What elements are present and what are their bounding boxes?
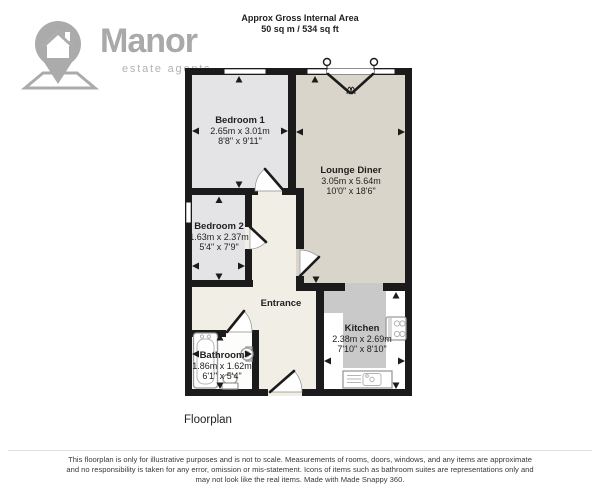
disclaimer-line-3: may not look like the real items. Made w… (20, 475, 580, 485)
room-name: Bathroom (192, 351, 252, 361)
room-name: Lounge Diner (320, 166, 381, 176)
room-metric-dims: 1.86m x 1.62m (192, 361, 252, 371)
room-name: Entrance (261, 299, 302, 309)
disclaimer-line-1: This floorplan is only for illustrative … (20, 455, 580, 465)
room-name: Kitchen (332, 324, 392, 334)
room-metric-dims: 2.65m x 3.01m (210, 126, 270, 136)
room-name: Bedroom 2 (189, 222, 249, 232)
room-label-bedroom-1: Bedroom 1 2.65m x 3.01m 8'8" x 9'11" (210, 116, 270, 146)
disclaimer-line-2: and no responsibility is taken for any e… (20, 465, 580, 475)
room-metric-dims: 1.63m x 2.37m (189, 232, 249, 242)
room-label-entrance: Entrance (261, 299, 302, 309)
floorplan-drawing (0, 0, 600, 495)
room-label-bedroom-2: Bedroom 2 1.63m x 2.37m 5'4" x 7'9" (189, 222, 249, 252)
lounge-window-left (307, 69, 327, 74)
floorplan-caption: Floorplan (184, 414, 232, 426)
kitchen-sink-icon (343, 371, 392, 388)
lounge-window-right (374, 69, 395, 74)
room-imperial-dims: 8'8" x 9'11" (210, 136, 270, 146)
room-name: Bedroom 1 (210, 116, 270, 126)
bedroom2-window (186, 202, 191, 223)
disclaimer-text: This floorplan is only for illustrative … (20, 455, 580, 485)
room-imperial-dims: 10'0" x 18'6" (320, 186, 381, 196)
room-metric-dims: 3.05m x 5.64m (320, 176, 381, 186)
room-metric-dims: 2.38m x 2.69m (332, 334, 392, 344)
separator-line (8, 450, 592, 451)
room-label-lounge-diner: Lounge Diner 3.05m x 5.64m 10'0" x 18'6" (320, 166, 381, 196)
room-imperial-dims: 5'4" x 7'9" (189, 242, 249, 252)
room-label-bathroom: Bathroom 1.86m x 1.62m 6'1" x 5'4" (192, 351, 252, 381)
room-label-kitchen: Kitchen 2.38m x 2.69m 7'10" x 8'10" (332, 324, 392, 354)
bedroom1-window (224, 69, 266, 74)
room-imperial-dims: 7'10" x 8'10" (332, 344, 392, 354)
room-imperial-dims: 6'1" x 5'4" (192, 371, 252, 381)
floorplan-page: Manor estate agents Approx Gross Interna… (0, 0, 600, 495)
